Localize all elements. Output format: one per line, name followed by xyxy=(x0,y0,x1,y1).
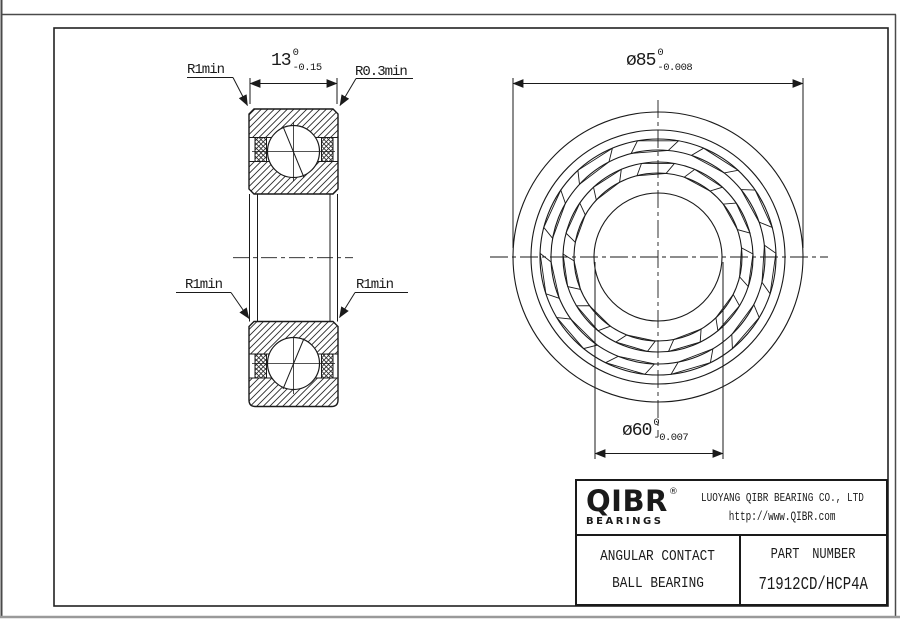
cage-pocket xyxy=(716,294,740,330)
part-number-label: PART NUMBER xyxy=(771,546,856,563)
fillet-label-r1min-top: R1min xyxy=(187,63,224,77)
od-dim-value: ø85 xyxy=(626,52,655,70)
cage-pocket xyxy=(594,169,622,200)
cage-section-bottom-right xyxy=(322,354,334,378)
part-number-value: 71912CD/HCP4A xyxy=(759,575,869,595)
bore-dimension: ø60 0 -0.007 xyxy=(622,422,688,443)
bore-dim-tol-upper: 0 xyxy=(653,418,688,429)
width-dim-tol-upper: 0 xyxy=(293,48,322,59)
cage-pocket xyxy=(684,169,722,191)
cage-pocket xyxy=(563,254,581,289)
bearing-front-view xyxy=(490,100,828,437)
product-type-line2: BALL BEARING xyxy=(612,575,704,592)
company-website: http://www.QIBR.com xyxy=(729,509,836,524)
fillet-label-r1min-left: R1min xyxy=(185,278,222,292)
brand-logo: QIBR ® BEARINGS xyxy=(577,481,678,534)
part-number-cell: PART NUMBER 71912CD/HCP4A xyxy=(739,536,886,604)
drawing-sheet: R1min 13 0 -0.15 R0.3min R1min R1min ø85… xyxy=(0,0,900,636)
brand-wordmark: QIBR xyxy=(586,488,668,514)
bearing-cross-section-view xyxy=(233,109,353,407)
leader-r1min-top xyxy=(233,78,248,106)
od-dim-tol-lower: -0.008 xyxy=(657,63,692,74)
cage-pocket xyxy=(723,203,750,233)
leader-r03min xyxy=(340,79,356,106)
title-block: QIBR ® BEARINGS LUOYANG QIBR BEARING CO.… xyxy=(575,479,888,606)
leader-r1min-right xyxy=(340,293,356,318)
fillet-label-r1min-right: R1min xyxy=(356,278,393,292)
bore-dim-tol-lower: -0.007 xyxy=(653,433,688,444)
od-dimension: ø85 0 -0.008 xyxy=(626,52,692,73)
cage-pocket xyxy=(692,148,739,173)
width-dimension: 13 0 -0.15 xyxy=(271,52,322,73)
width-dim-value: 13 xyxy=(271,52,291,70)
cage-section-top-left xyxy=(255,138,267,162)
registered-trademark-icon: ® xyxy=(669,488,678,497)
od-dim-tol-upper: 0 xyxy=(657,48,692,59)
cage-section-bottom-left xyxy=(255,354,267,378)
company-name: LUOYANG QIBR BEARING CO., LTD xyxy=(701,491,864,505)
bore-dim-value: ø60 xyxy=(622,422,651,440)
fillet-label-r03min: R0.3min xyxy=(355,65,407,79)
product-type-line1: ANGULAR CONTACT xyxy=(601,548,716,565)
cage-section-top-right xyxy=(322,138,334,162)
product-type-cell: ANGULAR CONTACT BALL BEARING xyxy=(577,536,739,604)
leader-r1min-left xyxy=(231,293,249,319)
width-dim-tol-lower: -0.15 xyxy=(293,63,322,74)
brand-subtitle: BEARINGS xyxy=(586,516,678,527)
